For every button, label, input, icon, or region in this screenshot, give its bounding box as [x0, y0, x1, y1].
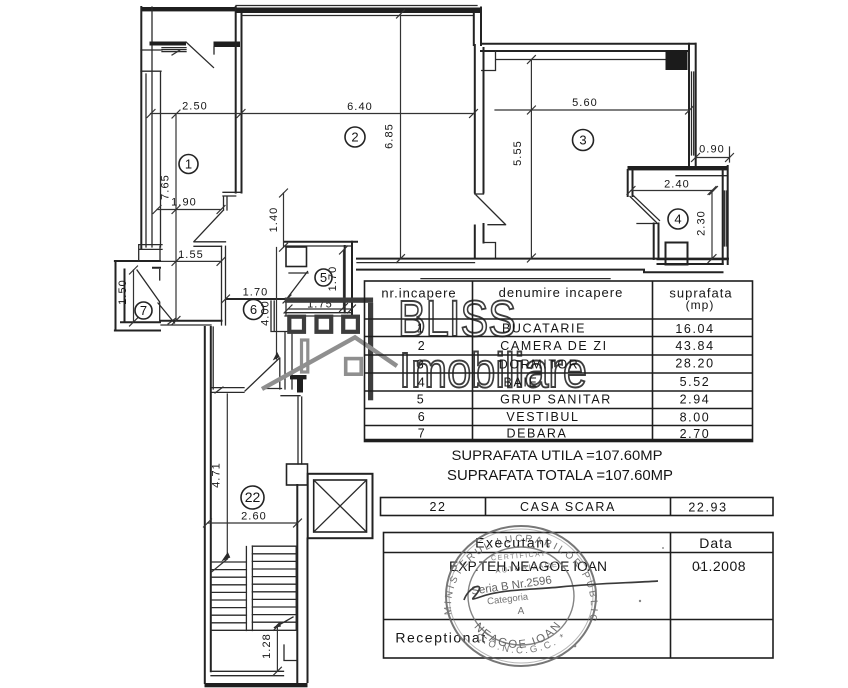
svg-text:(mp): (mp) — [686, 298, 715, 312]
svg-text:1.55: 1.55 — [178, 249, 204, 261]
svg-text:6.40: 6.40 — [347, 101, 373, 113]
svg-text:8.00: 8.00 — [680, 411, 711, 425]
svg-text:VESTIBUL: VESTIBUL — [506, 410, 579, 424]
svg-text:denumire incapere: denumire incapere — [499, 285, 624, 300]
svg-text:43.84: 43.84 — [675, 339, 714, 353]
svg-text:1: 1 — [417, 322, 426, 336]
svg-text:22: 22 — [429, 500, 446, 514]
svg-text:SUPRAFATA TOTALA =107.60MP: SUPRAFATA TOTALA =107.60MP — [447, 468, 673, 484]
svg-text:A: A — [518, 606, 525, 617]
svg-text:28.20: 28.20 — [675, 357, 714, 371]
svg-text:Data: Data — [699, 535, 733, 551]
svg-text:6.85: 6.85 — [384, 123, 396, 149]
svg-text:3: 3 — [579, 133, 586, 148]
svg-text:16.04: 16.04 — [675, 322, 714, 336]
svg-text:5.55: 5.55 — [512, 140, 524, 166]
svg-text:2.50: 2.50 — [182, 101, 208, 113]
svg-text:CASA SCARA: CASA SCARA — [520, 500, 616, 514]
svg-text:5.60: 5.60 — [572, 97, 598, 109]
svg-text:1.40: 1.40 — [268, 207, 280, 233]
svg-text:1.70: 1.70 — [327, 266, 339, 292]
svg-text:CAMERA DE ZI: CAMERA DE ZI — [500, 339, 607, 353]
svg-text:22.93: 22.93 — [688, 501, 727, 515]
svg-text:5: 5 — [320, 270, 327, 285]
svg-text:1.28: 1.28 — [261, 633, 273, 659]
svg-text:6: 6 — [418, 410, 427, 424]
svg-text:SUPRAFATA UTILA =107.60MP: SUPRAFATA UTILA =107.60MP — [452, 447, 663, 463]
svg-text:7: 7 — [418, 427, 427, 441]
svg-text:2.30: 2.30 — [696, 210, 708, 236]
svg-text:2.70: 2.70 — [680, 427, 711, 441]
svg-text:2.60: 2.60 — [241, 511, 267, 523]
svg-text:5: 5 — [417, 393, 426, 407]
svg-text:BUCATARIE: BUCATARIE — [502, 322, 586, 336]
svg-text:BAIE: BAIE — [504, 376, 539, 390]
svg-text:0.90: 0.90 — [699, 144, 725, 156]
svg-text:22: 22 — [245, 489, 261, 505]
svg-text:1.50: 1.50 — [117, 279, 129, 305]
svg-text:4: 4 — [674, 212, 681, 227]
svg-text:1.90: 1.90 — [171, 197, 197, 209]
svg-text:1: 1 — [185, 157, 192, 172]
svg-text:Receptionat: Receptionat — [395, 630, 486, 646]
svg-text:GRUP SANITAR: GRUP SANITAR — [500, 393, 612, 407]
svg-text:2: 2 — [351, 130, 358, 145]
svg-text:7.65: 7.65 — [160, 174, 172, 200]
svg-text:01.2008: 01.2008 — [692, 558, 746, 574]
svg-text:nr.incapere: nr.incapere — [381, 286, 456, 301]
svg-text:DEBARA: DEBARA — [506, 427, 567, 441]
svg-text:6: 6 — [250, 302, 257, 317]
svg-text:3: 3 — [417, 358, 426, 372]
svg-text:2.40: 2.40 — [664, 179, 690, 191]
svg-text:2.94: 2.94 — [680, 393, 711, 407]
svg-text:2: 2 — [418, 339, 427, 353]
svg-text:DORMITOR: DORMITOR — [499, 358, 580, 372]
svg-text:4: 4 — [418, 376, 427, 390]
svg-text:7: 7 — [140, 303, 147, 318]
svg-text:4.71: 4.71 — [211, 462, 223, 488]
svg-text:1.70: 1.70 — [243, 287, 269, 299]
svg-text:5.52: 5.52 — [680, 375, 711, 389]
